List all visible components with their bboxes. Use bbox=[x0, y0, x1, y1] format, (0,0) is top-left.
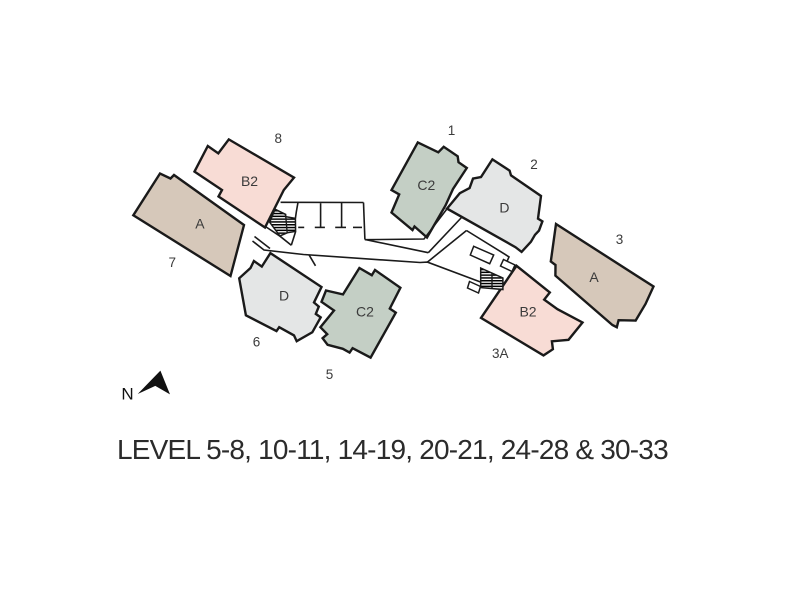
svg-text:B2: B2 bbox=[241, 173, 258, 189]
svg-text:6: 6 bbox=[253, 335, 261, 350]
svg-text:7: 7 bbox=[169, 255, 177, 270]
svg-text:D: D bbox=[279, 287, 289, 303]
svg-text:A: A bbox=[589, 269, 599, 285]
svg-text:A: A bbox=[195, 216, 205, 232]
svg-text:C2: C2 bbox=[356, 304, 374, 320]
svg-text:2: 2 bbox=[530, 157, 538, 172]
svg-text:3: 3 bbox=[616, 232, 624, 247]
svg-text:N: N bbox=[121, 384, 133, 403]
svg-text:C2: C2 bbox=[417, 177, 435, 193]
svg-text:5: 5 bbox=[326, 367, 334, 382]
svg-text:1: 1 bbox=[448, 123, 456, 138]
svg-text:8: 8 bbox=[274, 131, 282, 146]
svg-text:3A: 3A bbox=[492, 346, 509, 361]
svg-text:B2: B2 bbox=[519, 304, 536, 320]
svg-text:D: D bbox=[499, 200, 509, 216]
